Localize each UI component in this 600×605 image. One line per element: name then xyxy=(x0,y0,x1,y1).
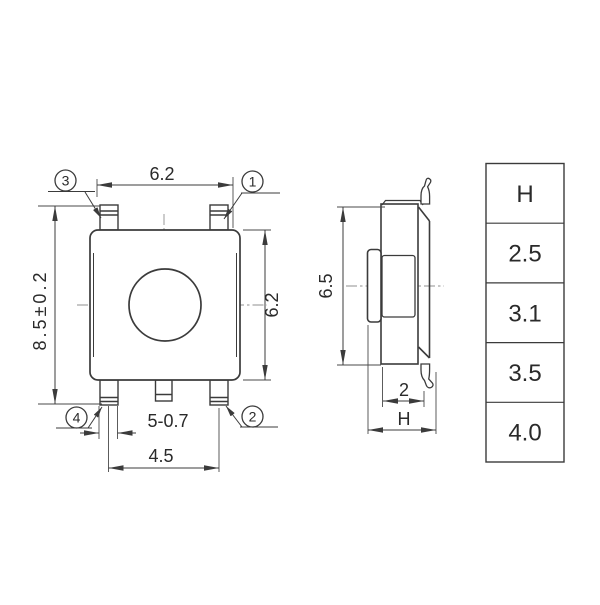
pin-bottom-right xyxy=(210,380,228,405)
side-body-outline xyxy=(381,204,418,364)
dim-pin-width-label: 5-0.7 xyxy=(147,411,188,431)
dim-base-label: 2 xyxy=(399,380,409,400)
dim-base: 2 xyxy=(383,367,425,407)
drawing-canvas: 6.2 8.5±0.2 6.2 xyxy=(0,0,600,600)
dim-top-width-label: 6.2 xyxy=(149,164,174,184)
dim-height-label: H xyxy=(398,409,411,429)
front-view: 6.2 8.5±0.2 6.2 xyxy=(30,164,282,472)
side-cover-plate xyxy=(419,207,430,358)
height-table: H 2.5 3.1 3.5 4.0 xyxy=(486,164,564,463)
callout-4-label: 4 xyxy=(73,410,81,426)
callout-1-label: 1 xyxy=(249,174,257,190)
table-header-H: H xyxy=(516,181,533,208)
pin-bottom-center xyxy=(156,380,173,401)
table-row-value: 2.5 xyxy=(508,241,541,268)
callout-4: 4 xyxy=(56,407,102,428)
callout-2-label: 2 xyxy=(249,409,257,425)
callout-1: 1 xyxy=(224,171,280,219)
dim-pin-spacing-label: 4.5 xyxy=(148,446,173,466)
pin-top-left xyxy=(100,205,118,230)
pin-bottom-left xyxy=(100,380,118,405)
side-top-lead xyxy=(421,178,431,204)
side-bottom-lead xyxy=(421,364,433,388)
side-button-stem xyxy=(368,250,382,323)
dim-depth-label: 6.5 xyxy=(316,273,336,298)
table-row-value: 3.1 xyxy=(508,300,541,327)
side-view: 6.5 2 H xyxy=(316,178,444,434)
dim-overall-height-label: 8.5±0.2 xyxy=(30,270,50,351)
table-row-value: 3.5 xyxy=(508,360,541,387)
technical-drawing: 6.2 8.5±0.2 6.2 xyxy=(0,0,600,600)
front-body xyxy=(90,230,240,380)
callout-2: 2 xyxy=(226,406,278,427)
callout-3-label: 3 xyxy=(62,173,70,189)
dim-side-height-label: 6.2 xyxy=(262,292,282,317)
side-body xyxy=(368,178,434,388)
callout-3: 3 xyxy=(48,170,101,218)
table-row-value: 4.0 xyxy=(508,420,541,447)
body-outline xyxy=(90,230,240,380)
